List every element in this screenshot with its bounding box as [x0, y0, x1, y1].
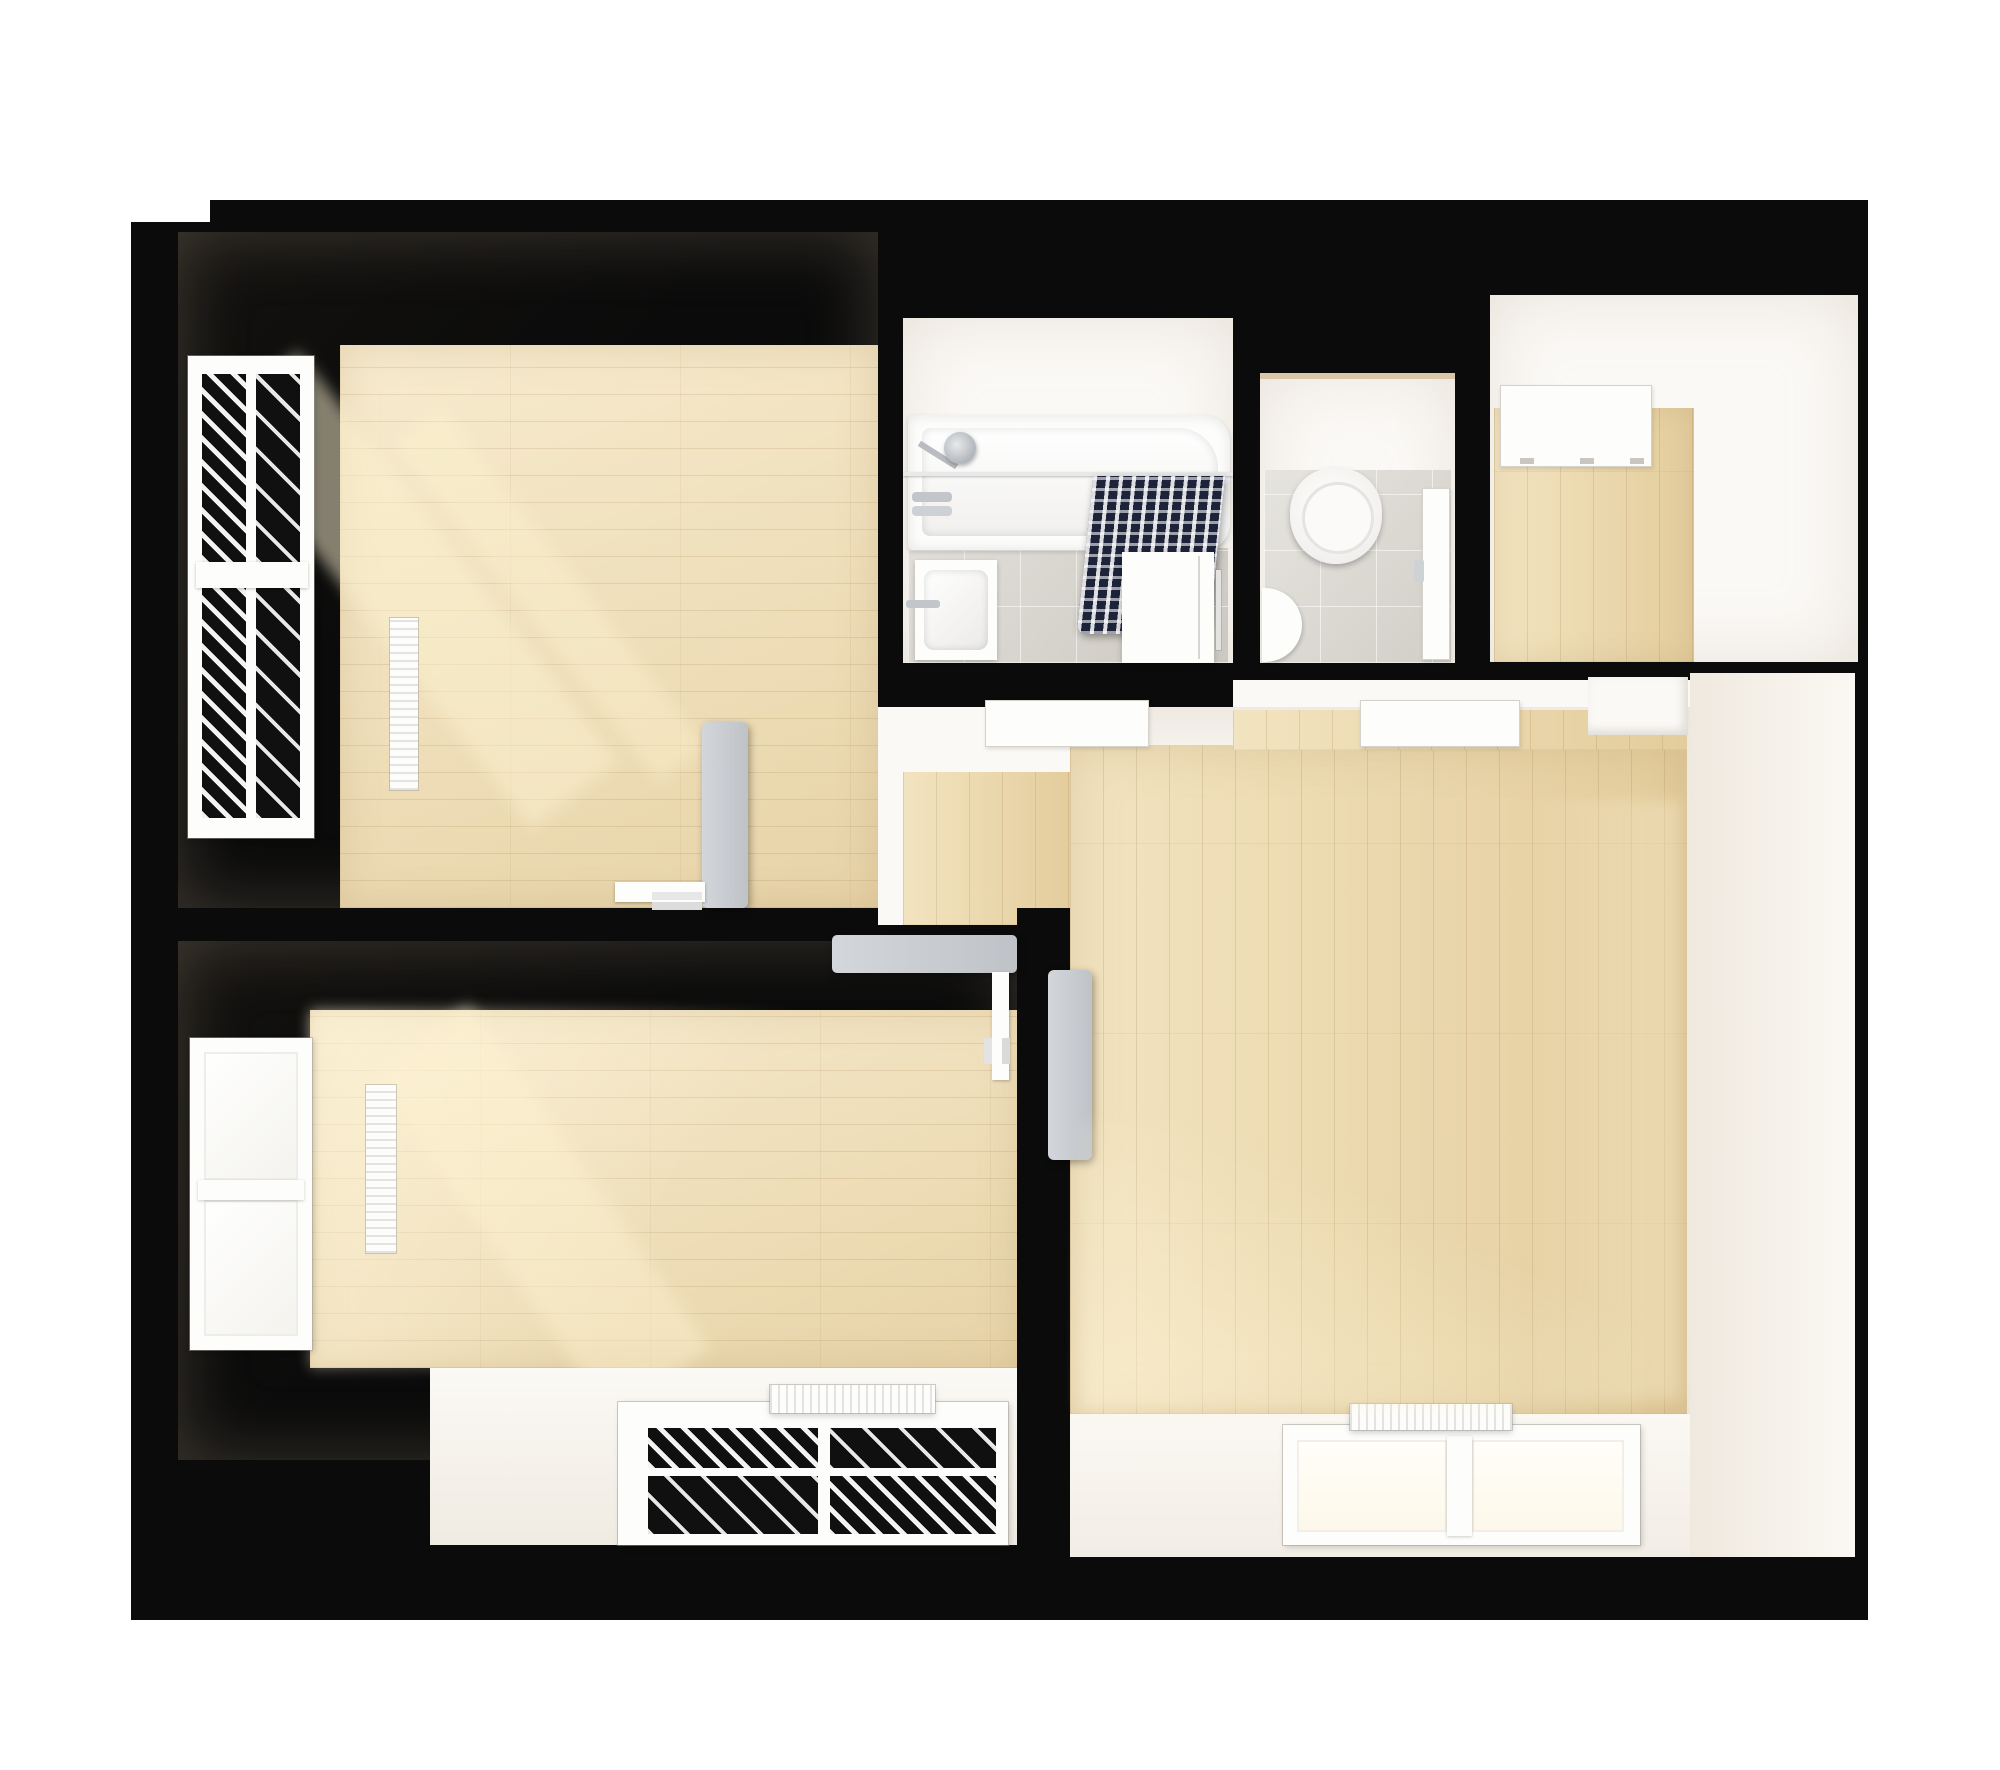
bedroom2-window-rail: [198, 1180, 304, 1200]
wc-door: [1422, 488, 1450, 660]
bedroom2-radiator: [366, 1085, 396, 1253]
living-alcove: [1588, 677, 1688, 735]
shower-head: [944, 432, 976, 464]
entrance-door: [1500, 385, 1652, 467]
bedroom1-radiator: [390, 618, 418, 790]
bedroom1-window-pane: [256, 374, 300, 562]
bedroom1-window-pane: [202, 374, 246, 562]
wc-door-handle: [1414, 560, 1424, 582]
bedroom1-door-handle: [652, 892, 702, 900]
bedroom1-window-pane: [256, 588, 300, 818]
bay-window-pane: [828, 1428, 996, 1468]
living-window-sash: [1472, 1440, 1624, 1532]
bedroom1-window-rail: [196, 562, 308, 588]
bedroom2-floor: [310, 1010, 1017, 1368]
toilet-seat: [1302, 482, 1374, 554]
bedroom1-floor: [340, 345, 878, 908]
wc-hall-door: [1360, 700, 1520, 747]
entrance-door-hinge: [1520, 458, 1534, 464]
living-floor-main: [1070, 745, 1687, 1414]
bay-window-mullion: [818, 1424, 830, 1538]
washing-machine-handle: [1216, 570, 1221, 650]
bedroom2-window-pane: [204, 1052, 298, 1180]
bedroom2-door-handle: [984, 1038, 992, 1064]
living-floor-nook: [903, 772, 1070, 925]
bedroom1-open-door: [702, 722, 748, 908]
washing-machine-door-seam: [1198, 556, 1200, 659]
living-window-mullion: [1447, 1436, 1472, 1536]
living-window-radiator: [1350, 1404, 1512, 1430]
living-open-door: [1048, 970, 1092, 1160]
living-window-sash: [1297, 1440, 1447, 1532]
bedroom1-window-pane: [202, 588, 246, 818]
bathroom-sink-faucet: [906, 600, 940, 608]
bedroom2-window-pane: [204, 1200, 298, 1336]
bedroom2-door-edge: [992, 972, 1009, 1080]
wall-top-step-notch: [131, 200, 210, 222]
living-right-wall-face: [1690, 673, 1855, 1557]
bath-faucet: [912, 492, 952, 502]
bay-window-pane: [648, 1476, 820, 1534]
bedroom2-open-door: [832, 935, 1017, 973]
bay-window-pane: [648, 1428, 820, 1468]
bathroom-sink-basin: [924, 570, 988, 650]
washing-machine: [1122, 552, 1214, 663]
bay-radiator: [770, 1385, 935, 1413]
wc-lintel: [1260, 373, 1455, 379]
bay-window-pane: [828, 1476, 996, 1534]
bathroom-door: [985, 700, 1149, 747]
floorplan-render: [0, 0, 2000, 1770]
